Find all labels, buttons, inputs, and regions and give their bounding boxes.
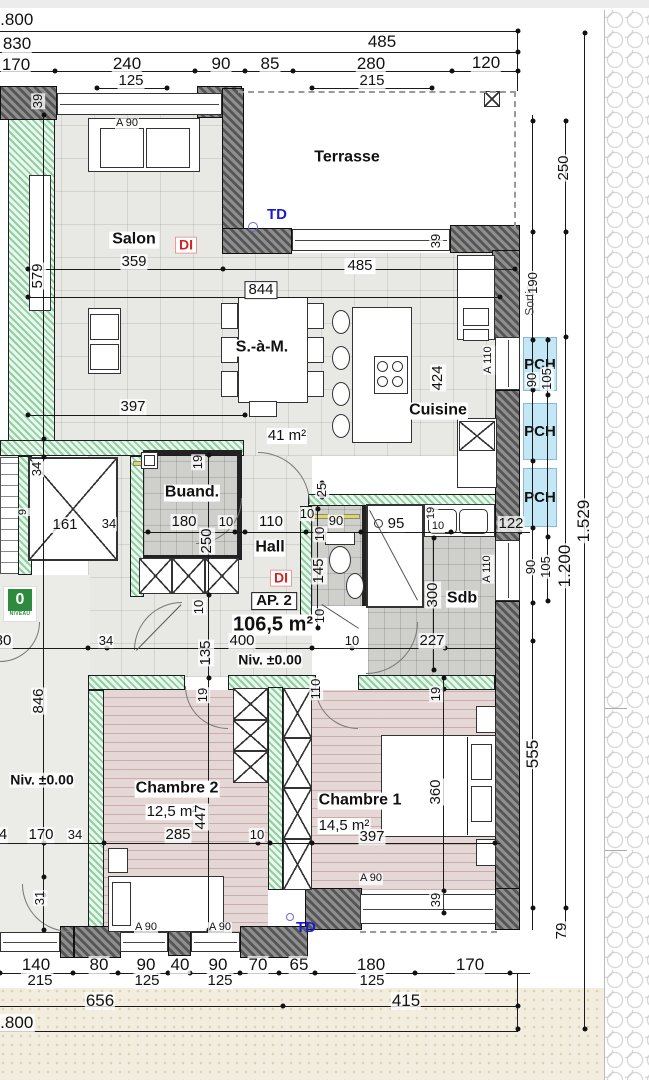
dim-label: 240 (112, 55, 142, 73)
dim-tick (564, 335, 569, 340)
level-badge: 0 NIVEAU (3, 586, 37, 622)
dimension-line (605, 708, 627, 709)
dim-label: 19 (191, 454, 205, 470)
room-label: Chambre 2 (135, 781, 220, 798)
dim-label: 10 (249, 828, 265, 842)
dimension-line (43, 115, 44, 930)
dim-label: 844 (244, 281, 277, 299)
dim-label: 10 (299, 507, 315, 521)
dim-tick (95, 86, 100, 91)
dim-label: 125 (117, 73, 144, 89)
dim-label: 360 (428, 778, 444, 805)
dim-tick (42, 928, 47, 933)
apartment-id-label: AP. 2 (251, 592, 297, 610)
dim-label: 40 (170, 956, 191, 974)
junction-box (484, 91, 500, 107)
burner (392, 376, 403, 387)
dim-tick (165, 86, 170, 91)
dim-label: 1.800 (0, 1014, 34, 1032)
dim-tick (546, 338, 551, 343)
dim-label: 80 (0, 633, 12, 649)
dim-tick (281, 1004, 286, 1009)
dim-label: 122 (497, 516, 524, 532)
dim-label: 215 (26, 973, 53, 989)
dim-label: 110 (258, 514, 284, 530)
dimension-line (605, 850, 627, 851)
wall-segment (222, 228, 292, 254)
dim-tick (513, 267, 518, 272)
dim-tick (71, 971, 76, 976)
dim-label: 180 (170, 514, 197, 530)
dim-label: 579 (30, 262, 46, 289)
wall-segment (268, 687, 283, 890)
dim-label: A 90 (208, 922, 232, 934)
facade-insulation-strip (604, 10, 649, 1080)
dim-label: 400 (228, 633, 255, 649)
dim-label: 485 (367, 33, 397, 51)
pch-box: PCH (523, 403, 557, 460)
dimension-line (517, 973, 518, 1031)
dimension-line (517, 31, 518, 91)
dim-label: 85 (260, 55, 281, 73)
dim-tick (310, 841, 315, 846)
dim-tick (26, 295, 31, 300)
room-label: Hall (254, 540, 285, 557)
dim-tick (498, 295, 503, 300)
dim-label: 90 (525, 372, 539, 388)
chair (249, 401, 277, 417)
dim-label: 190 (526, 271, 540, 295)
dim-label: 9 (18, 508, 30, 516)
dim-label: 90 (211, 55, 232, 73)
dim-label: 110 (309, 678, 323, 701)
dim-tick (116, 971, 121, 976)
top-margin-band (0, 0, 649, 8)
dim-label: 80 (89, 956, 110, 974)
burner (392, 361, 403, 372)
dim-label: 4 (0, 827, 8, 843)
sofa-cushion (100, 128, 144, 168)
dim-tick (277, 971, 282, 976)
chair (307, 337, 324, 363)
dim-label: 10 (431, 521, 445, 533)
dim-tick (316, 507, 321, 512)
dim-label: 250 (199, 527, 215, 554)
window (120, 932, 168, 952)
stool (332, 414, 350, 438)
stairs (0, 457, 19, 574)
room-label: Terrasse (313, 150, 381, 167)
washer (144, 455, 155, 466)
dimension-line (532, 115, 533, 930)
wardrobe (283, 738, 312, 788)
room-label: Cuisine (408, 403, 468, 420)
dim-tick (564, 230, 569, 235)
dim-tick (42, 455, 47, 460)
wardrobe (139, 558, 172, 594)
pillow (112, 882, 131, 926)
dim-label: 280 (356, 55, 386, 73)
dim-label: 555 (524, 739, 542, 769)
dim-label: 485 (344, 258, 375, 274)
dim-tick (86, 646, 91, 651)
dim-tick (493, 841, 498, 846)
room-label: Buand. (164, 485, 220, 502)
dim-tick (508, 971, 513, 976)
dim-tick (516, 69, 521, 74)
dim-tick (233, 530, 238, 535)
burner (377, 376, 388, 387)
dimension-line (0, 31, 518, 32)
dimension-line (565, 121, 566, 935)
stool (332, 310, 350, 334)
dim-tick (238, 971, 243, 976)
dim-label: 170 (27, 827, 54, 843)
dim-label: 125 (358, 973, 385, 989)
dashed-line (514, 91, 516, 228)
room-area-label: 12,5 m² (146, 804, 199, 820)
dim-tick (531, 639, 536, 644)
dim-label: 10 (192, 599, 206, 615)
td-point (286, 913, 294, 921)
dim-tick (102, 841, 107, 846)
dim-label: A 110 (482, 554, 494, 583)
dim-tick (207, 453, 212, 458)
dim-label: 10 (313, 608, 327, 624)
sideboard (29, 175, 51, 311)
dim-tick (546, 599, 551, 604)
dim-label: 34 (98, 634, 114, 648)
dim-tick (442, 676, 447, 681)
dim-label: 19 (429, 686, 443, 702)
window (191, 932, 240, 952)
dim-label: 34 (67, 828, 83, 842)
dashed-line (238, 91, 516, 93)
dimension-line (0, 52, 518, 53)
dim-label: 90 (524, 559, 538, 575)
dim-label: 39 (429, 233, 443, 249)
wardrobe (233, 720, 268, 751)
dim-label: 227 (418, 633, 445, 649)
dim-tick (583, 31, 588, 36)
dim-tick (449, 530, 454, 535)
toilet-tank (325, 532, 355, 545)
dim-label: 359 (120, 254, 147, 270)
dim-label: A 90 (359, 873, 383, 885)
dim-tick (207, 676, 212, 681)
room-label: Sdb (446, 591, 478, 608)
wc-sink (346, 573, 364, 599)
dim-label: 10 (218, 515, 234, 529)
dim-label: 145 (311, 557, 327, 584)
level-badge-value: 0 (8, 589, 32, 611)
window (292, 229, 450, 251)
dim-tick (0, 971, 3, 976)
di-marker: DI (270, 570, 292, 587)
kitchen-sink (463, 329, 489, 341)
sofa-cushion (90, 314, 119, 340)
dim-tick (432, 668, 437, 673)
nightstand (108, 848, 128, 873)
dim-tick (516, 1027, 521, 1032)
dim-tick (310, 86, 315, 91)
dim-label: 170 (455, 956, 485, 974)
dim-tick (564, 119, 569, 124)
dim-tick (313, 971, 318, 976)
dim-tick (531, 459, 536, 464)
wardrobe (283, 788, 312, 839)
dim-label: 415 (391, 992, 421, 1010)
wall-segment (88, 690, 104, 932)
dim-label: 424 (430, 364, 446, 391)
level-label: Niv. ±0.00 (9, 773, 74, 788)
room-area-label: 41 m² (267, 428, 307, 444)
dim-tick (564, 906, 569, 911)
dim-label: 34 (30, 461, 44, 477)
dim-label: 215 (358, 73, 385, 89)
dim-label: 39 (429, 892, 443, 908)
dimension-line (0, 1031, 518, 1032)
di-marker: DI (175, 237, 197, 254)
dim-tick (310, 646, 315, 651)
room-label: Chambre 1 (318, 793, 403, 810)
dim-label: 10 (313, 526, 327, 542)
washbasin (459, 509, 488, 534)
dim-label: 65 (289, 956, 310, 974)
dim-label: 846 (31, 687, 47, 714)
td-point (248, 222, 258, 232)
dim-tick (53, 69, 58, 74)
wardrobe (205, 558, 239, 594)
level-badge-caption: NIVEAU (4, 611, 36, 617)
dim-tick (531, 338, 536, 343)
dim-label: 1.800 (0, 11, 34, 29)
dim-tick (531, 230, 536, 235)
kitchen-sink (463, 308, 489, 326)
wall-segment (0, 86, 57, 120)
wardrobe (283, 839, 312, 890)
dim-label: 125 (206, 973, 233, 989)
wardrobe (233, 751, 268, 783)
dim-tick (516, 50, 521, 55)
dim-tick (531, 526, 536, 531)
dim-label: 79 (554, 922, 570, 941)
dashed-line (360, 931, 497, 933)
dim-label: 31 (33, 890, 47, 906)
dim-tick (546, 535, 551, 540)
wall-segment (495, 601, 520, 890)
dim-label: 125 (133, 973, 160, 989)
floor-plan: 0 NIVEAU PCHPCHPCH1.80083048517024090852… (0, 0, 649, 1080)
dim-tick (430, 86, 435, 91)
dim-label: 120 (471, 54, 501, 72)
chair (221, 371, 238, 397)
dim-tick (413, 971, 418, 976)
dim-tick (268, 841, 273, 846)
dim-label: 95 (387, 516, 406, 532)
dim-tick (243, 530, 248, 535)
dimension-line (28, 269, 515, 270)
dim-tick (42, 437, 47, 442)
dim-tick (531, 388, 536, 393)
dim-label: 1.200 (556, 544, 574, 589)
dim-tick (42, 875, 47, 880)
dim-label: 105 (539, 555, 553, 579)
dim-tick (531, 906, 536, 911)
dim-tick (546, 393, 551, 398)
dim-tick (432, 536, 437, 541)
dim-label: 447 (193, 803, 209, 830)
dim-label: 135 (198, 639, 214, 666)
dim-tick (42, 113, 47, 118)
chair (307, 303, 324, 329)
dim-label: 10 (344, 634, 360, 648)
pch-box: PCH (523, 468, 557, 527)
window (495, 337, 520, 390)
dim-label: 70 (248, 956, 269, 974)
dim-tick (207, 593, 212, 598)
dim-tick (221, 267, 226, 272)
window (0, 932, 60, 952)
dim-label: 1.529 (575, 499, 593, 544)
dim-label: A 90 (115, 118, 139, 130)
dim-label: 34 (101, 517, 117, 531)
dim-label: 656 (85, 992, 115, 1010)
dim-label: 397 (119, 399, 146, 415)
dimension-line (28, 415, 245, 416)
wall-segment (495, 888, 520, 930)
pillow (471, 744, 492, 780)
room-label: S.-à-M. (233, 340, 291, 357)
dim-tick (516, 1004, 521, 1009)
room-label: Salon (109, 232, 159, 249)
dim-tick (442, 911, 447, 916)
dim-label: 25 (315, 482, 329, 498)
dimension-line (0, 843, 500, 844)
dim-tick (450, 69, 455, 74)
dim-tick (146, 530, 151, 535)
pillow (471, 786, 492, 822)
dim-label: 250 (556, 154, 572, 181)
nightstand (476, 706, 496, 733)
dim-tick (291, 69, 296, 74)
dim-label: 19 (426, 506, 438, 520)
td-marker: TD (295, 920, 317, 936)
dim-tick (531, 119, 536, 124)
dim-label: 39 (31, 93, 45, 109)
window (57, 93, 222, 115)
dimension-line (467, 737, 468, 835)
dim-label: 161 (51, 517, 78, 533)
dim-tick (193, 69, 198, 74)
kitchen-appliance (459, 421, 495, 451)
dim-tick (531, 601, 536, 606)
dim-label: A 90 (134, 922, 158, 934)
dim-label: A 110 (483, 345, 495, 374)
dim-label: 397 (358, 829, 385, 845)
dim-label: 170 (1, 56, 31, 74)
stool (332, 346, 350, 370)
dim-label: 90 (328, 514, 344, 528)
sofa-cushion (90, 344, 119, 370)
dim-label: 830 (2, 35, 32, 53)
dim-label: 19 (196, 687, 210, 703)
stool (332, 382, 350, 406)
dimension-line (0, 1006, 518, 1007)
td-marker: TD (266, 207, 288, 223)
dim-tick (243, 69, 248, 74)
dim-tick (316, 626, 321, 631)
dim-tick (359, 530, 364, 535)
dim-tick (26, 413, 31, 418)
dim-tick (304, 530, 309, 535)
dim-tick (243, 413, 248, 418)
dim-label: 300 (425, 581, 441, 608)
wardrobe (172, 558, 205, 594)
wardrobe (233, 688, 268, 720)
dim-label: 105 (540, 367, 554, 391)
toilet (329, 546, 351, 574)
level-label: Niv. ±0.00 (237, 653, 302, 668)
wall-segment (88, 675, 185, 690)
dim-label: 285 (164, 827, 191, 843)
wall-segment (222, 88, 244, 230)
window (495, 540, 520, 601)
chair (221, 303, 238, 329)
wall-segment (492, 250, 520, 340)
dim-tick (516, 29, 521, 34)
dim-tick (583, 1027, 588, 1032)
wall-segment (450, 225, 520, 253)
burner (377, 361, 388, 372)
sofa-cushion (146, 128, 190, 168)
wall-segment (358, 675, 495, 690)
chair (307, 371, 324, 397)
